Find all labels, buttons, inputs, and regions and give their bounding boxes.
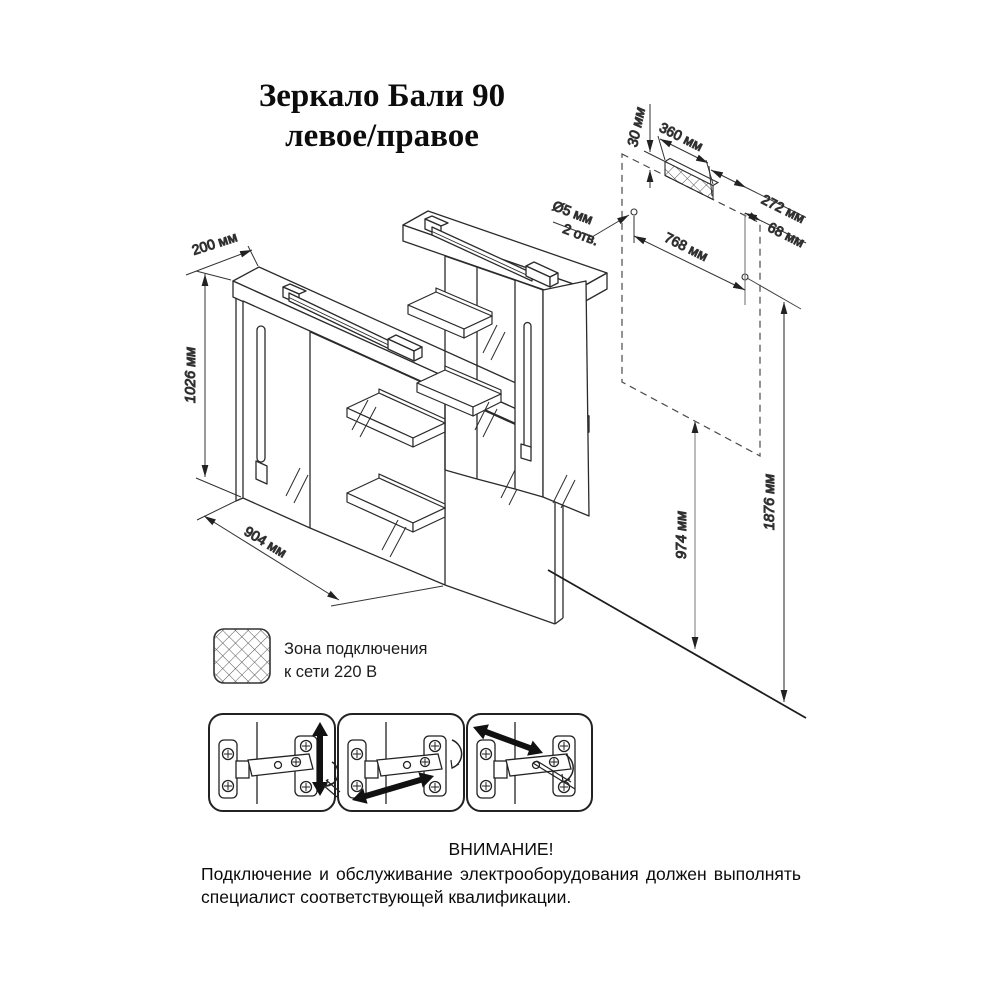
dim-label-768mm: 768 мм <box>662 229 711 264</box>
template-outline-dashed <box>622 154 760 456</box>
technical-drawing-page: Зеркало Бали 90 левое/правое <box>0 0 1000 1000</box>
left-cabinet-shelves <box>347 389 445 532</box>
dim-cabinet-height-1026 <box>196 271 241 497</box>
warning-block: ВНИМАНИЕ! Подключение и обслуживание эле… <box>201 839 801 909</box>
dim-label-hole-count: 2 отв. <box>561 220 601 248</box>
dim-label-272mm: 272 мм <box>759 191 808 226</box>
warning-body: Подключение и обслуживание электрооборуд… <box>201 863 801 909</box>
dim-label-1026mm: 1026 мм <box>183 347 199 403</box>
legend: Зона подключения к сети 220 В <box>214 629 427 683</box>
dim-label-200mm: 200 мм <box>190 228 239 258</box>
legend-hatch-swatch <box>214 629 270 683</box>
hinge-adjustment-diagrams <box>209 714 592 811</box>
dim-label-1876mm: 1876 мм <box>762 474 778 530</box>
dim-zone-offset-30 <box>644 104 668 188</box>
mounting-hole-left <box>631 209 637 215</box>
hole-level-line <box>747 278 801 309</box>
warning-heading: ВНИМАНИЕ! <box>201 839 801 860</box>
dim-label-360mm: 360 мм <box>657 119 706 154</box>
legend-text-line1: Зона подключения <box>284 640 427 658</box>
hinge-drawing-1 <box>219 722 317 804</box>
dim-label-30mm: 30 мм <box>625 106 649 149</box>
legend-text-line2: к сети 220 В <box>284 663 377 681</box>
dim-label-974mm: 974 мм <box>674 511 690 559</box>
floor-line <box>548 570 806 718</box>
